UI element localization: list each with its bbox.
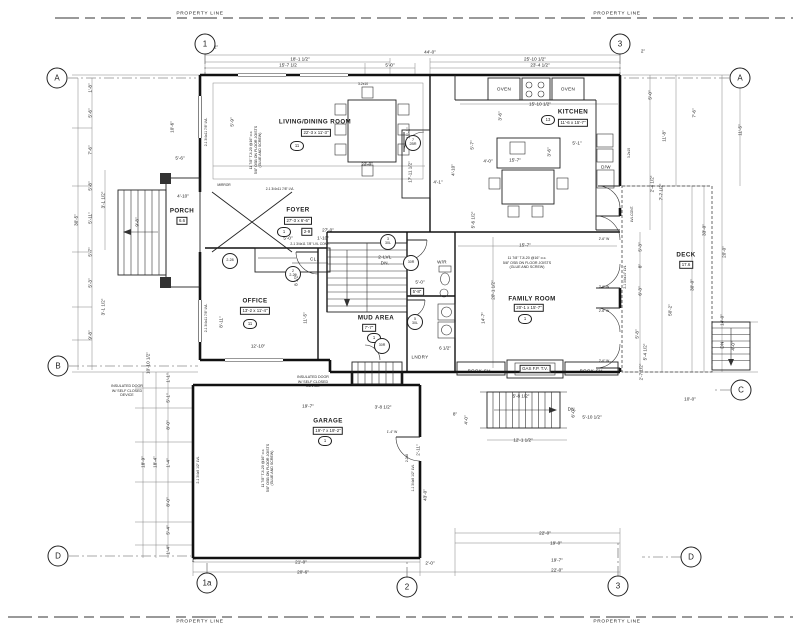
- dim-label: 5'-8 1/2": [513, 393, 530, 399]
- dim-label: 2'-4 1/2": [649, 176, 655, 193]
- grid-bubble-3: 3: [608, 576, 629, 597]
- room-label-kitchen: KITCHEN: [558, 108, 588, 115]
- door-tag: 5 30L: [407, 314, 423, 330]
- dim-label: 17'-11 1/2": [407, 161, 413, 183]
- grid-bubble-B: B: [48, 356, 69, 377]
- room-label-deck: DECK: [676, 251, 695, 258]
- hex-label: 1: [318, 436, 332, 446]
- tiny-label: 3-2x10: [628, 148, 632, 158]
- dim-label: 8": [637, 264, 643, 268]
- room-label-porch: PORCH: [170, 207, 194, 214]
- dim-label: 11'-5": [737, 124, 743, 135]
- insulated-door-note: INSULATED DOOR W/ SELF CLOSED DEVICE: [111, 384, 143, 398]
- dim-label: 11'-8": [661, 130, 667, 141]
- tiny-label: MIRROR: [217, 184, 230, 188]
- tiny-label: 2-1 3/4x11 7/8" LVL: [205, 118, 209, 147]
- dim-label: 5'-8": [634, 329, 640, 338]
- dim-label: 8": [453, 411, 457, 417]
- dim-label: 1'-1": [165, 373, 171, 382]
- dim-label: 2'-0": [425, 560, 434, 566]
- dim-label: 4'-0": [463, 415, 469, 424]
- dim-label: 1'-4": [165, 545, 171, 554]
- plan-labels: LIVING/DINING ROOM22'-3 x 11'-3"11KITCHE…: [0, 0, 800, 640]
- bookshelf-label: BOOK SH.: [468, 368, 493, 374]
- grid-bubble-1: 1: [195, 34, 216, 55]
- dim-label: 15'-7": [519, 242, 531, 248]
- dim-label: 5'-4 1/2": [642, 344, 648, 361]
- room-label-office: OFFICE: [242, 297, 267, 304]
- grid-bubble-A: A: [47, 68, 68, 89]
- dim-label: 5'-0": [385, 62, 394, 68]
- dim-label: 9'-8": [87, 330, 93, 339]
- tiny-label: 2-1 3/4x14" LVL: [624, 265, 628, 288]
- dim-label: 7'-6": [691, 108, 697, 117]
- box-label: 2-9: [301, 228, 312, 236]
- dim-label: 5'-7": [469, 140, 475, 149]
- dim-label: 5'-0": [647, 90, 653, 99]
- dim-label: 44'-0": [424, 49, 436, 55]
- dim-label: 4'-10": [177, 193, 189, 199]
- dim-label: 5'-4": [165, 525, 171, 534]
- dim-label: 3'-8 1/2": [375, 404, 392, 410]
- dim-label: 1'-4": [165, 458, 171, 467]
- dim-label: 4'-1": [433, 179, 442, 185]
- dim-label: 15'-7": [509, 157, 521, 163]
- dim-label: 20'-0": [721, 246, 727, 258]
- closet-label: CL.: [310, 256, 318, 262]
- dim-label: 8'-0": [165, 420, 171, 429]
- room-label-family-room: FAMILY ROOM: [508, 295, 555, 302]
- box-label: 17.6: [679, 261, 693, 269]
- dim-label: 3'-6": [546, 147, 552, 156]
- floor-joist-note: 11 7/8" TJI-20 @16" o.c. 5/8" OSB ON FLO…: [249, 126, 263, 174]
- dim-label: 3'-1 1/2": [100, 192, 106, 209]
- dim-label: 5'-6": [87, 108, 93, 117]
- dim-label: 5'-1": [165, 393, 171, 402]
- grid-bubble-1a: 1a: [197, 573, 218, 594]
- box-label: 5'-8": [410, 288, 424, 296]
- dim-label: 1'-10": [317, 235, 329, 241]
- tiny-label: 2'-6" W: [599, 286, 610, 290]
- dim-label: 19'-0": [550, 540, 562, 546]
- tiny-label: 1'-4" W: [387, 431, 398, 435]
- tiny-label: 2'-6" W: [599, 238, 610, 242]
- dim-label: 11'-5": [302, 312, 308, 323]
- dishwasher-label: D/W: [601, 164, 611, 170]
- dim-label: 5'-8": [87, 181, 93, 190]
- dim-label: 11'-1": [405, 127, 411, 138]
- dim-label: 5'-1": [572, 140, 581, 146]
- dim-label: 2'-7 1/2": [638, 364, 644, 381]
- grid-bubble-A: A: [730, 68, 751, 89]
- hex-label: 11: [243, 319, 257, 329]
- tiny-label: LVL CONT.: [631, 206, 635, 222]
- tiny-label: 2'-6" W: [599, 360, 610, 364]
- floor-plan-sheet: PROPERTY LINE PROPERTY LINE PROPERTY LIN…: [0, 0, 800, 640]
- tiny-label: 2-1 3/4x11 7/8" LVL CONT.: [290, 243, 329, 247]
- dim-label: 10'-10 1/2": [145, 352, 151, 374]
- dim-label: 50'-2": [667, 304, 673, 316]
- tiny-label: 2-1 3/4x11 7/8" LVL: [205, 304, 209, 333]
- grid-bubble-3: 3: [610, 34, 631, 55]
- tiny-label: 2-1 3/4x9 1/2" LVL: [197, 457, 201, 484]
- dim-label: 6'-3": [637, 286, 643, 295]
- grid-bubble-D: D: [681, 547, 702, 568]
- bookshelf-label: BOOK SH.: [580, 368, 605, 374]
- dim-label: 15'-7 1/2: [279, 62, 297, 68]
- dim-label: 12'-10": [251, 343, 265, 349]
- dim-label: 1'-8": [87, 83, 93, 92]
- grid-bubble-C: C: [731, 380, 752, 401]
- hex-label: 1: [518, 314, 532, 324]
- dim-label: 18'-9": [140, 456, 146, 468]
- box-label: 22'-3 x 11'-3": [301, 129, 331, 137]
- dim-label: 8'-0": [165, 497, 171, 506]
- dim-label: 9'-8": [134, 217, 140, 226]
- dim-label: 3'-6": [497, 111, 503, 120]
- dim-label: 5'-6": [175, 155, 184, 161]
- dim-label: 2'-11": [415, 444, 421, 455]
- dim-label: 5'-6 1/2": [470, 212, 476, 229]
- dim-label: 4'-10": [450, 164, 456, 176]
- dim-label: 21'-0": [295, 559, 307, 565]
- dim-label: 10'-0": [684, 396, 696, 402]
- box-label: 19'-7 x 19'-2": [313, 427, 343, 435]
- dim-label: 20'-1 1/2": [490, 280, 496, 299]
- box-label: 7'-7": [362, 324, 376, 332]
- tiny-label: 2-2x8: [406, 454, 410, 462]
- box-label: 20'-1 x 15'-7": [514, 304, 544, 312]
- dim-label: 8'-11": [218, 316, 224, 327]
- dim-label: 6 1/2": [439, 345, 451, 351]
- dim-label: 14'-7": [480, 312, 486, 324]
- box-label: 11'-6 x 15'-7": [558, 119, 588, 127]
- dim-label: 19'-7": [551, 557, 563, 563]
- hex-label: 13: [541, 115, 555, 125]
- dim-label: 33'-0": [701, 224, 707, 236]
- dim-label: 18'-1 1/2": [290, 56, 309, 62]
- dim-label: 4'-0": [483, 158, 492, 164]
- tiny-label: 2-1 3/4x11 7/8" LVL: [266, 188, 295, 192]
- tiny-label: 1-1 3/4x9 1/2" LVL: [412, 465, 416, 492]
- dim-label: 19'-7": [302, 403, 314, 409]
- dim-label: 22'-0": [361, 161, 373, 167]
- deck-stair-label: DN: [719, 341, 725, 348]
- box-label: 27'-3 x 6'-6": [284, 217, 312, 225]
- dim-label: 14'-0": [719, 314, 725, 326]
- dim-label: 43'-0": [422, 489, 428, 501]
- door-tag: 30R: [403, 255, 419, 271]
- dim-label: 30'-5": [73, 214, 79, 226]
- hex-label: 11: [290, 141, 304, 151]
- tiny-label: 2'-6" W: [599, 310, 610, 314]
- door-tag: 3 30L: [380, 234, 396, 250]
- oven-label: OVEN: [561, 86, 575, 92]
- tiny-label: 3-2x10: [358, 83, 368, 87]
- dim-label: 5'-9": [229, 117, 235, 126]
- room-label-mud-area: MUD AREA: [358, 314, 394, 321]
- room-label-foyer: FOYER: [286, 206, 309, 213]
- dim-label: 27'-0": [322, 227, 334, 233]
- dim-label: 6'-0": [570, 408, 576, 417]
- dim-label: 5'-0": [283, 235, 292, 241]
- door-tag: 30R: [374, 338, 390, 354]
- dim-label: 23'-4 1/2": [530, 62, 549, 68]
- grid-bubble-D: D: [48, 546, 69, 567]
- room-label-laundry: LNDRY: [412, 354, 429, 360]
- box-label: 13'-2 x 11'-4": [240, 307, 270, 315]
- oven-label: OVEN: [497, 86, 511, 92]
- dim-label: 22'-0": [551, 567, 563, 573]
- dim-label: 2": [192, 557, 196, 563]
- floor-joist-note: 11 7/8" TJI-20 @16" o.c. 5/8" OSB ON FLO…: [503, 256, 551, 270]
- dim-label: 5'-10 1/2": [582, 414, 601, 420]
- dim-label: 5'-7": [87, 247, 93, 256]
- insulated-door-note: INSULATED DOOR W/ SELF CLOSED DEVICE: [297, 375, 329, 389]
- dim-label: 7'-7 1/2": [658, 184, 664, 201]
- dim-label: 20'-6": [297, 569, 309, 575]
- dim-label: 4'-0": [730, 341, 736, 350]
- dim-label: 3'-1 1/2": [100, 299, 106, 316]
- room-label-garage: GARAGE: [313, 417, 343, 424]
- dim-label: 5'-11": [87, 212, 93, 223]
- dim-label: 15'-10 1/2": [529, 101, 551, 107]
- dim-label: 22'-0": [539, 530, 551, 536]
- dim-label: 30'-0": [689, 279, 695, 291]
- floor-joist-note: 11 7/8" TJI-20 @16" o.c. 5/8" OSB ON FLO…: [261, 444, 275, 492]
- grid-bubble-2: 2: [397, 577, 418, 598]
- stair-label: 2-LVL DN.: [378, 255, 391, 266]
- room-label-living-dining: LIVING/DINING ROOM: [279, 118, 351, 125]
- dim-label: 2": [641, 48, 645, 54]
- door-tag: 2-28: [222, 253, 238, 269]
- room-label-washroom: W/R: [437, 259, 447, 265]
- dim-label: 18'-4": [152, 456, 158, 468]
- dim-label: 5'-3": [637, 242, 643, 251]
- dim-label: 8 1/2": [293, 274, 299, 286]
- dim-label: 25'-10 1/2": [524, 56, 546, 62]
- dim-label: 5'-3": [87, 278, 93, 287]
- dim-label: 5'-0": [415, 279, 424, 285]
- dim-label: 12'-1 1/2": [513, 437, 532, 443]
- box-label: 6.6: [176, 217, 187, 225]
- dim-label: 10'-6": [169, 121, 175, 133]
- dim-label: 7'-6": [87, 145, 93, 154]
- fireplace-label: GAS F.P. T.V.: [520, 365, 551, 373]
